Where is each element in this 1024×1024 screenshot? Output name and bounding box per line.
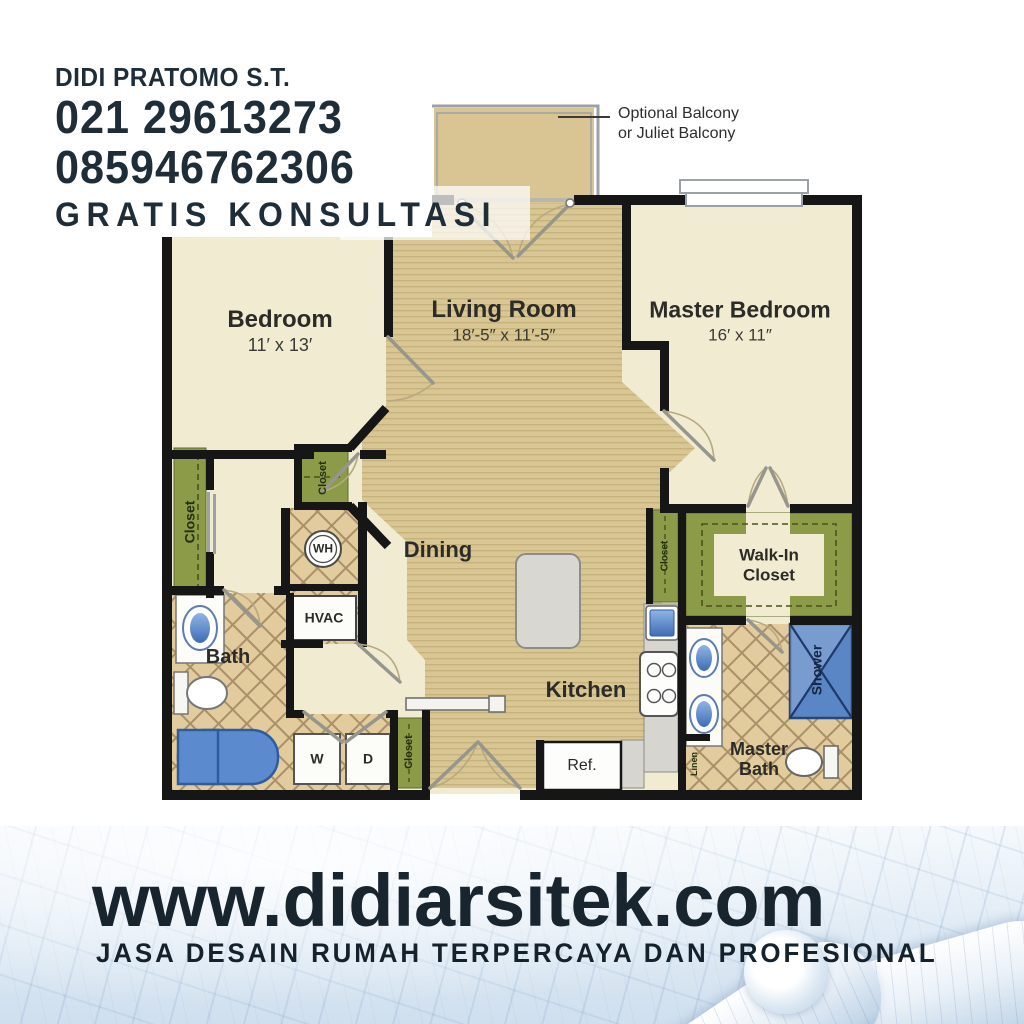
balcony-note-line2: or Juliet Balcony: [618, 125, 735, 142]
dining-label: Dining: [404, 538, 472, 562]
contact-block: DIDI PRATOMO S.T. 021 29613273 085946762…: [55, 62, 497, 235]
kitchen-closet-label: Closet: [660, 541, 671, 572]
master-bedroom-dims: 16′ x 11″: [708, 327, 772, 346]
phone-number-2: 085946762306: [55, 143, 497, 193]
shower-label: Shower: [809, 645, 824, 696]
architect-name: DIDI PRATOMO S.T.: [55, 62, 497, 93]
kitchen-island: [516, 554, 580, 648]
living-room-label: Living Room: [431, 297, 576, 323]
washer-label: W: [310, 751, 323, 766]
dining-ledge: [406, 698, 498, 710]
free-consultation-text: GRATIS KONSULTASI: [55, 196, 497, 235]
website-url: www.didiarsitek.com: [92, 858, 825, 943]
entry-closet-label: Closet: [403, 735, 415, 769]
bath-label: Bath: [206, 646, 250, 668]
poster: Bedroom 11′ x 13′ Living Room 18′-5″ x 1…: [0, 0, 1024, 1024]
master-bedroom-label: Master Bedroom: [649, 297, 830, 322]
ref-label: Ref.: [567, 757, 596, 775]
hall-closet-label: Closet: [317, 461, 329, 495]
walk-in-label-1: Walk-In: [739, 547, 799, 566]
living-room-dims: 18′-5″ x 11′-5″: [452, 327, 555, 346]
bedroom-label: Bedroom: [227, 307, 332, 333]
walk-in-label-2: Closet: [743, 567, 795, 586]
dryer-label: D: [363, 751, 373, 766]
hvac-label: HVAC: [305, 610, 344, 625]
linen-label: Linen: [690, 752, 700, 776]
bedroom-dims: 11′ x 13′: [248, 336, 312, 356]
phone-number-1: 021 29613273: [55, 93, 497, 143]
balcony-note: Optional Balcony or Juliet Balcony: [618, 104, 739, 144]
balcony-note-line1: Optional Balcony: [618, 105, 739, 122]
footer-banner: www.didiarsitek.com JASA DESAIN RUMAH TE…: [0, 826, 1024, 1024]
bedroom-closet-label: Closet: [182, 501, 197, 544]
master-bath-label: Master Bath: [711, 740, 807, 780]
footer-tagline: JASA DESAIN RUMAH TERPERCAYA DAN PROFESI…: [96, 938, 938, 969]
kitchen-label: Kitchen: [546, 678, 627, 702]
wh-label: WH: [313, 542, 333, 555]
